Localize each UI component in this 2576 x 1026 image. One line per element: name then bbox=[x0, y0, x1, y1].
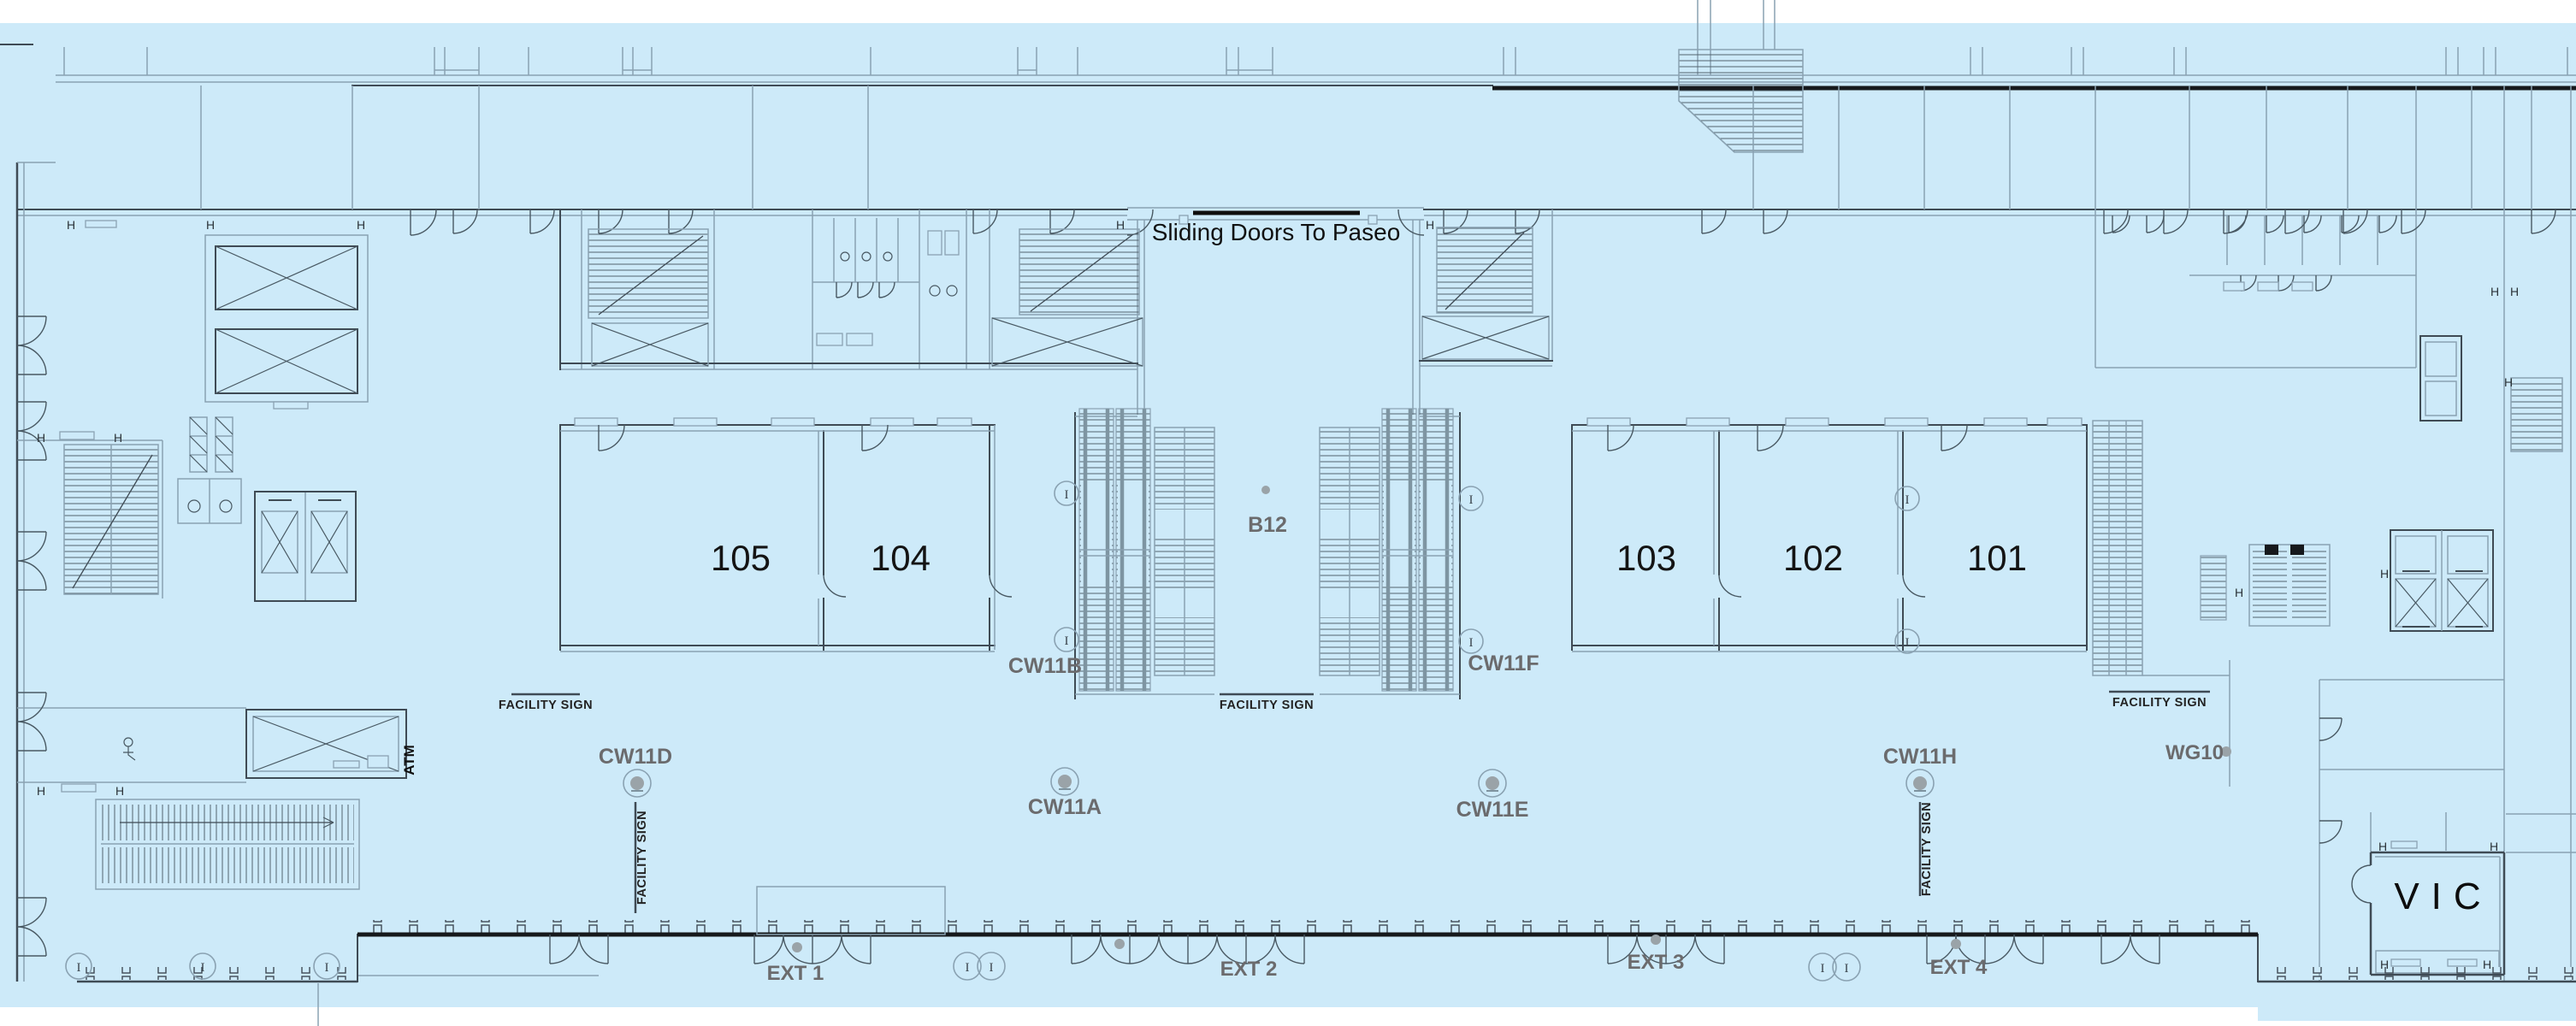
cw11a-label: CW11A bbox=[1028, 795, 1102, 819]
stair-hatch bbox=[1019, 229, 1139, 315]
sliding-doors-label: Sliding Doors To Paseo bbox=[1152, 219, 1401, 245]
h-marker: H bbox=[115, 784, 124, 798]
exit-label-2: EXT 2 bbox=[1220, 958, 1278, 981]
room-label-102: 102 bbox=[1783, 538, 1843, 578]
column-i-icon: I bbox=[201, 961, 205, 975]
column-i-icon: I bbox=[1905, 493, 1910, 507]
stair-hatch bbox=[1437, 227, 1533, 313]
h-marker: H bbox=[1116, 218, 1125, 232]
h-marker: H bbox=[114, 431, 122, 445]
h-marker: H bbox=[206, 218, 215, 232]
room-label-103: 103 bbox=[1616, 538, 1676, 578]
exit-label-1: EXT 1 bbox=[767, 962, 824, 985]
column-i-icon: I bbox=[1905, 636, 1910, 650]
cw11b-label: CW11B bbox=[1008, 654, 1082, 678]
stair-hatch bbox=[2201, 556, 2226, 620]
h-marker: H bbox=[2504, 375, 2513, 389]
column-i-icon: I bbox=[325, 961, 329, 975]
h-marker: H bbox=[2490, 840, 2498, 853]
column-i-icon: I bbox=[1065, 634, 1069, 648]
column-i-icon: I bbox=[966, 961, 970, 975]
column-i-icon: I bbox=[1469, 493, 1474, 507]
room-label-104: 104 bbox=[871, 538, 931, 578]
h-marker: H bbox=[2378, 840, 2387, 853]
h-marker: H bbox=[37, 784, 45, 798]
cw11d-label: CW11D bbox=[599, 745, 672, 769]
column-i-icon: I bbox=[1469, 636, 1474, 650]
h-marker: H bbox=[2510, 285, 2519, 298]
h-marker: H bbox=[2483, 958, 2491, 971]
escalator-band bbox=[2093, 421, 2142, 675]
h-marker: H bbox=[37, 431, 45, 445]
exit-label-4: EXT 4 bbox=[1930, 956, 1988, 979]
facility-sign-label: FACILITY SIGN bbox=[1220, 699, 1314, 712]
column-i-icon: I bbox=[990, 961, 994, 975]
cw11h-label: CW11H bbox=[1883, 745, 1957, 769]
facility-sign-label: FACILITY SIGN bbox=[499, 699, 593, 712]
area-label-b12: B12 bbox=[1248, 513, 1287, 537]
stair-hatch bbox=[2511, 378, 2562, 451]
h-marker: H bbox=[357, 218, 365, 232]
stair-hatch bbox=[588, 229, 708, 318]
facility-sign-label: FACILITY SIGN bbox=[2112, 696, 2207, 710]
facility-sign-label-vertical: FACILITY SIGN bbox=[1920, 802, 1934, 896]
facility-sign-label-vertical: FACILITY SIGN bbox=[635, 811, 649, 905]
floor-plan-canvas: I I I I I I I I I I I I I Sliding Doors … bbox=[0, 0, 2576, 1026]
area-label-wg10: WG10 bbox=[2165, 741, 2224, 764]
column-i-icon: I bbox=[1845, 962, 1849, 976]
exit-label-3: EXT 3 bbox=[1628, 951, 1685, 974]
h-marker: H bbox=[2490, 285, 2499, 298]
h-marker: H bbox=[2380, 567, 2389, 581]
room-label-105: 105 bbox=[711, 538, 771, 578]
atm-label: ATM bbox=[401, 745, 417, 775]
h-marker: H bbox=[2235, 586, 2243, 599]
h-marker: H bbox=[1426, 218, 1434, 232]
h-marker: H bbox=[2380, 958, 2389, 971]
cw11e-label: CW11E bbox=[1456, 798, 1529, 822]
h-marker: H bbox=[67, 218, 75, 232]
floor-plan-page: I I I I I I I I I I I I I Sliding Doors … bbox=[0, 0, 2576, 1026]
column-i-icon: I bbox=[1065, 488, 1069, 502]
column-i-icon: I bbox=[1821, 962, 1825, 976]
b12-dot bbox=[1261, 486, 1270, 494]
area-label-vic: VIC bbox=[2394, 876, 2492, 917]
room-label-101: 101 bbox=[1967, 538, 2027, 578]
cw11f-label: CW11F bbox=[1468, 652, 1539, 675]
column-i-icon: I bbox=[77, 961, 81, 975]
